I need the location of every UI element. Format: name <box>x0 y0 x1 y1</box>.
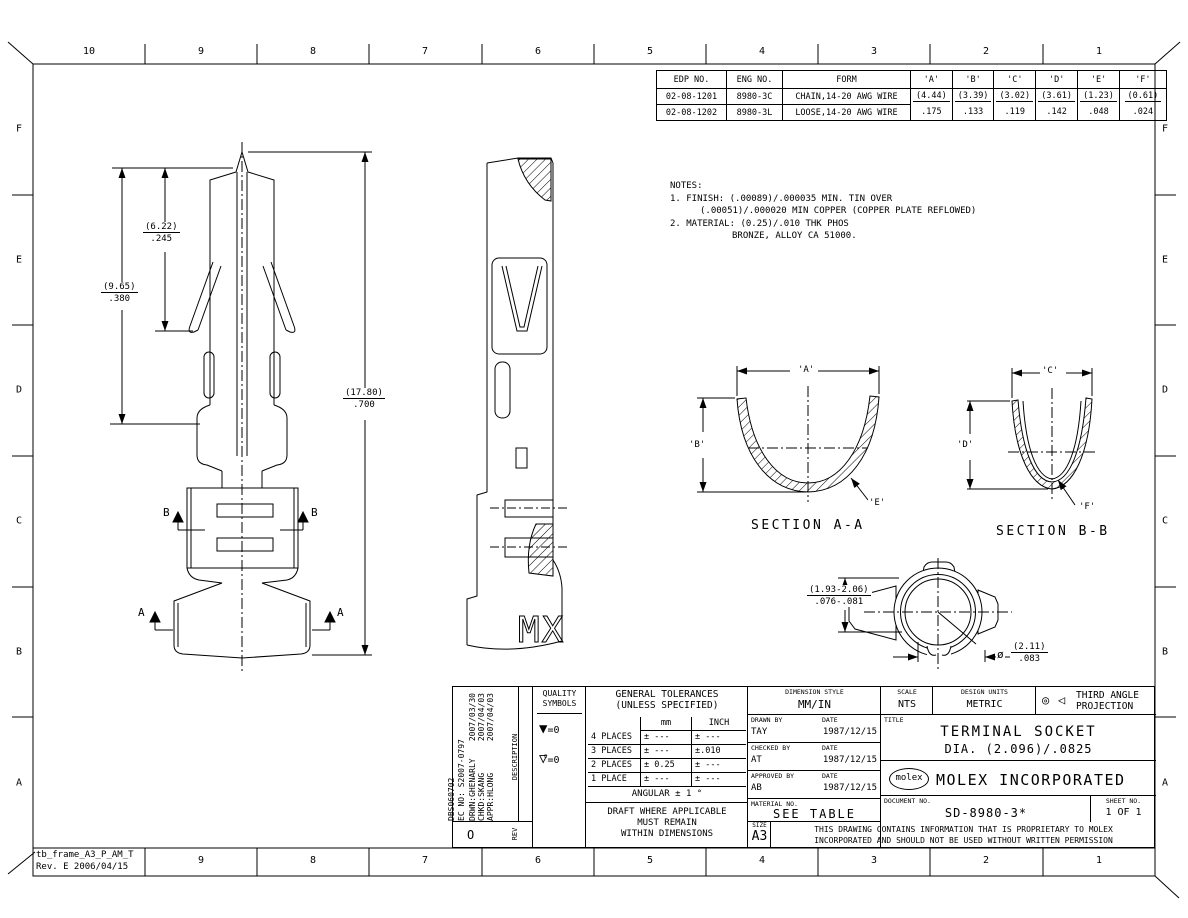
title-area: SCALE NTS DESIGN UNITS METRIC ◎ ◁ THIRD … <box>881 687 1156 822</box>
company-cell: molex MOLEX INCORPORATED <box>881 761 1156 796</box>
checked-date: 1987/12/15 <box>823 755 877 765</box>
grid-col-label: 9 <box>198 855 204 866</box>
drawn-by-value: TAY <box>751 727 767 737</box>
grid-col-label: 8 <box>310 46 316 57</box>
dim-in: .119 <box>994 105 1036 121</box>
dim-in: .142 <box>1036 105 1078 121</box>
col-header: EDP NO. <box>657 71 727 89</box>
mx-marking: MX <box>518 610 565 651</box>
quality-symbol-open: ▽C=0 <box>539 751 559 767</box>
dim-letter-e: 'E' <box>868 498 886 508</box>
frame-id-block: tb_frame_A3_P_AM_T Rev. E 2006/04/15 <box>36 849 134 873</box>
grid-col-label: 7 <box>422 855 428 866</box>
description-header: DESCRIPTION <box>510 693 520 821</box>
tol-label: 2 PLACES <box>588 759 640 773</box>
col-header: FORM <box>783 71 911 89</box>
date-label: DATE <box>822 744 838 752</box>
molex-logo: molex <box>889 768 929 790</box>
date-label: DATE <box>822 716 838 724</box>
tol-mm: ± --- <box>640 773 691 787</box>
sheet-no-label: SHEET NO. <box>1091 797 1156 805</box>
dim-in: .133 <box>952 105 994 121</box>
approved-rev: APPR:HLONG2007/04/03 <box>486 693 496 821</box>
grid-col-label: 5 <box>647 46 653 57</box>
cone-icon: ◁ <box>1058 693 1065 707</box>
approved-by-cell: APPROVED BY DATE AB 1987/12/15 <box>748 771 881 799</box>
approved-by-value: AB <box>751 783 762 793</box>
col-header: 'C' <box>994 71 1036 89</box>
proprietary-notice: THIS DRAWING CONTAINS INFORMATION THAT I… <box>771 824 1156 846</box>
edp-no: 02-08-1202 <box>657 105 727 121</box>
document-no-label: DOCUMENT NO. <box>884 797 931 805</box>
tolerance-table: mm INCH 4 PLACES ± --- ± --- 3 PLACES ± … <box>588 717 746 787</box>
drawing-title1: TERMINAL SOCKET <box>881 724 1156 740</box>
tol-inch: ±.010 <box>691 745 746 759</box>
projection-line2: PROJECTION <box>1076 701 1133 712</box>
dim-label-17-80: (17.80) .700 <box>342 388 386 410</box>
rev-mark: O <box>467 828 474 842</box>
quality-symbol-filled: ▼=0 <box>539 721 559 737</box>
dim-mm: (1.23) <box>1078 89 1120 105</box>
grid-col-label: 5 <box>647 855 653 866</box>
scale-cell: SCALE NTS <box>881 687 933 715</box>
dim-letter-a: 'A' <box>797 365 815 375</box>
table-header-row: EDP NO. ENG NO. FORM 'A' 'B' 'C' 'D' 'E'… <box>657 71 1167 89</box>
material-value: SEE TABLE <box>748 807 881 821</box>
dimension-style-label: DIMENSION STYLE <box>748 688 881 696</box>
grid-row-label: A <box>16 778 22 789</box>
note-line: (.00051)/.000020 MIN COPPER (COPPER PLAT… <box>670 205 976 218</box>
rev-header: REV <box>510 823 520 845</box>
col-header: ENG NO. <box>727 71 783 89</box>
quality-symbols-block: QUALITY SYMBOLS ▼=0 ▽C=0 <box>533 687 586 847</box>
approved-date: 1987/12/15 <box>823 783 877 793</box>
drawing-title2: DIA. (2.096)/.0825 <box>881 742 1156 756</box>
grid-row-label: E <box>1162 255 1168 266</box>
grid-col-label: 3 <box>871 46 877 57</box>
symbol-value: =0 <box>547 725 559 736</box>
dim-label-9-65: (9.65) .380 <box>100 282 139 304</box>
grid-col-label: 4 <box>759 46 765 57</box>
dim-in: .024 <box>1119 105 1166 121</box>
section-aa-view <box>697 366 879 502</box>
grid-col-label: 2 <box>983 46 989 57</box>
title-cell: TITLE TERMINAL SOCKET DIA. (2.096)/.0825 <box>881 715 1156 761</box>
tol-inch: ± --- <box>691 731 746 745</box>
bullseye-icon: ◎ <box>1042 693 1049 707</box>
sheet-no-value: 1 OF 1 <box>1091 807 1156 818</box>
grid-col-label: 10 <box>83 46 95 57</box>
grid-col-label: 9 <box>198 46 204 57</box>
dim-in: .175 <box>911 105 953 121</box>
size-label: SIZE <box>748 822 771 829</box>
part-number-table: EDP NO. ENG NO. FORM 'A' 'B' 'C' 'D' 'E'… <box>656 70 1167 121</box>
size-value: A3 <box>748 829 771 844</box>
title-block: DBS060702 EC NO: S2007-0797 DRWN:GHENARL… <box>452 686 1155 848</box>
draft-note3: WITHIN DIMENSIONS <box>586 829 748 839</box>
col-header: 'E' <box>1078 71 1120 89</box>
col-header: 'A' <box>911 71 953 89</box>
dim-in: .700 <box>343 399 385 410</box>
spacer <box>588 717 640 731</box>
col-header: 'B' <box>952 71 994 89</box>
dim-mm: (0.61) <box>1119 89 1166 105</box>
section-bb-view <box>967 368 1098 505</box>
tolerance-title1: GENERAL TOLERANCES <box>586 689 748 700</box>
dim-label-tab: (1.93-2.06) .076-.081 <box>806 585 872 607</box>
grid-row-label: E <box>16 255 22 266</box>
section-cut-label-a: A <box>337 606 344 619</box>
eng-no: 8980-3C <box>727 89 783 105</box>
company-name: MOLEX INCORPORATED <box>936 771 1126 789</box>
grid-row-label: B <box>16 647 22 658</box>
tol-mm: ± 0.25 <box>640 759 691 773</box>
material-cell: MATERIAL NO. SEE TABLE <box>748 799 881 822</box>
grid-col-label: 4 <box>759 855 765 866</box>
dim-mm: (3.39) <box>952 89 994 105</box>
grid-row-label: C <box>16 516 22 527</box>
projection-line1: THIRD ANGLE <box>1076 690 1139 701</box>
section-cut-label-b: B <box>311 506 318 519</box>
approved-by-label: APPROVED BY <box>751 772 794 780</box>
tol-label: 3 PLACES <box>588 745 640 759</box>
dim-letter-b: 'B' <box>688 440 706 450</box>
dim-mm: (9.65) <box>101 282 138 293</box>
dim-label-dia: (2.11) .083 <box>1010 642 1049 664</box>
dim-letter-c: 'C' <box>1041 366 1059 376</box>
divider <box>453 821 533 822</box>
mm-header: mm <box>640 717 691 731</box>
symbol-value: =0 <box>547 755 559 766</box>
grid-col-label: 7 <box>422 46 428 57</box>
design-units-value: METRIC <box>933 699 1036 710</box>
inch-header: INCH <box>691 717 746 731</box>
diameter-symbol: ø <box>996 648 1005 661</box>
grid-col-label: 6 <box>535 46 541 57</box>
tol-label: 4 PLACES <box>588 731 640 745</box>
dim-letter-f: 'F' <box>1078 502 1096 512</box>
edp-no: 02-08-1201 <box>657 89 727 105</box>
drawing-sheet: MX <box>0 0 1188 918</box>
dim-label-6-22: (6.22) .245 <box>142 222 181 244</box>
dim-mm: (3.61) <box>1036 89 1078 105</box>
eng-no: 8980-3L <box>727 105 783 121</box>
note-line: BRONZE, ALLOY CA 51000. <box>670 230 976 243</box>
grid-col-label: 6 <box>535 855 541 866</box>
ec-ref: DBS060702 <box>447 693 457 821</box>
checked-by-cell: CHECKED BY DATE AT 1987/12/15 <box>748 743 881 771</box>
size-cell: SIZE A3 <box>748 822 771 847</box>
form: CHAIN,14-20 AWG WIRE <box>783 89 911 105</box>
grid-col-label: 1 <box>1096 855 1102 866</box>
frame-template-rev: Rev. E 2006/04/15 <box>36 861 134 873</box>
dim-mm: (1.93-2.06) <box>807 585 871 596</box>
grid-row-label: F <box>1162 124 1168 135</box>
dim-in: .048 <box>1078 105 1120 121</box>
grid-row-label: A <box>1162 778 1168 789</box>
note-line: 1. FINISH: (.00089)/.000035 MIN. TIN OVE… <box>670 193 976 206</box>
section-bb-title: SECTION B-B <box>996 524 1110 539</box>
dim-in: .076-.081 <box>807 596 871 607</box>
dimension-style-cell: DIMENSION STYLE MM/IN <box>748 687 881 715</box>
grid-row-label: B <box>1162 647 1168 658</box>
document-no-cell: DOCUMENT NO. SD-8980-3* <box>881 796 1091 822</box>
grid-col-label: 3 <box>871 855 877 866</box>
notes-block: NOTES: 1. FINISH: (.00089)/.000035 MIN. … <box>670 180 976 243</box>
revision-block: DBS060702 EC NO: S2007-0797 DRWN:GHENARL… <box>453 687 533 847</box>
design-units-cell: DESIGN UNITS METRIC <box>933 687 1036 715</box>
tolerances-block: GENERAL TOLERANCES (UNLESS SPECIFIED) mm… <box>586 687 748 847</box>
checked-by-value: AT <box>751 755 762 765</box>
col-header: 'D' <box>1036 71 1078 89</box>
legal-line1: THIS DRAWING CONTAINS INFORMATION THAT I… <box>771 824 1156 835</box>
dim-mm: (2.11) <box>1011 642 1048 653</box>
tol-inch: ± --- <box>691 773 746 787</box>
projection-cell: ◎ ◁ THIRD ANGLE PROJECTION <box>1036 687 1156 715</box>
quality-title: QUALITY <box>533 689 586 698</box>
sheet-no-cell: SHEET NO. 1 OF 1 <box>1091 796 1156 822</box>
scale-value: NTS <box>881 699 933 710</box>
grid-row-label: D <box>1162 385 1168 396</box>
dimension-style-value: MM/IN <box>748 698 881 711</box>
document-no-value: SD-8980-3* <box>881 806 1091 820</box>
grid-row-label: C <box>1162 516 1168 527</box>
dim-mm: (17.80) <box>343 388 385 399</box>
section-cut-label-b: B <box>163 506 170 519</box>
draft-note2: MUST REMAIN <box>586 818 748 828</box>
grid-row-label: F <box>16 124 22 135</box>
checked-by-label: CHECKED BY <box>751 744 790 752</box>
dim-mm: (4.44) <box>911 89 953 105</box>
dim-in: .380 <box>101 293 138 304</box>
col-header: 'F' <box>1119 71 1166 89</box>
open-triangle-icon: ▽C <box>539 751 547 767</box>
drawn-by-label: DRAWN BY <box>751 716 782 724</box>
drawn-by-cell: DRAWN BY DATE TAY 1987/12/15 <box>748 715 881 743</box>
tol-mm: ± --- <box>640 745 691 759</box>
dim-in: .245 <box>143 233 180 244</box>
grid-col-label: 2 <box>983 855 989 866</box>
notes-title: NOTES: <box>670 180 976 193</box>
ec-number: EC NO: S2007-0797 <box>457 693 467 821</box>
drawn-date: 1987/12/15 <box>823 727 877 737</box>
dim-mm: (3.02) <box>994 89 1036 105</box>
form: LOOSE,14-20 AWG WIRE <box>783 105 911 121</box>
design-units-label: DESIGN UNITS <box>933 688 1036 696</box>
dim-mm: (6.22) <box>143 222 180 233</box>
grid-col-label: 8 <box>310 855 316 866</box>
tol-inch: ± --- <box>691 759 746 773</box>
terminal-end-view <box>838 558 1012 672</box>
angular-tolerance: ANGULAR ± 1 ° <box>586 789 748 799</box>
terminal-side-view: MX <box>467 158 568 651</box>
table-row: 02-08-1201 8980-3C CHAIN,14-20 AWG WIRE … <box>657 89 1167 105</box>
frame-template-name: tb_frame_A3_P_AM_T <box>36 849 134 861</box>
tol-mm: ± --- <box>640 731 691 745</box>
grid-row-label: D <box>16 385 22 396</box>
draft-note1: DRAFT WHERE APPLICABLE <box>586 807 748 817</box>
title-label: TITLE <box>884 716 904 724</box>
date-label: DATE <box>822 772 838 780</box>
dim-in: .083 <box>1011 653 1048 664</box>
tol-label: 1 PLACE <box>588 773 640 787</box>
dim-letter-d: 'D' <box>956 440 974 450</box>
note-line: 2. MATERIAL: (0.25)/.010 THK PHOS <box>670 218 976 231</box>
section-cut-label-a: A <box>138 606 145 619</box>
divider <box>537 713 582 714</box>
table-row: 02-08-1202 8980-3L LOOSE,14-20 AWG WIRE … <box>657 105 1167 121</box>
grid-col-label: 1 <box>1096 46 1102 57</box>
scale-label: SCALE <box>881 688 933 696</box>
tolerance-title2: (UNLESS SPECIFIED) <box>586 700 748 711</box>
symbols-title: SYMBOLS <box>533 699 586 708</box>
legal-line2: INCORPORATED AND SHOULD NOT BE USED WITH… <box>771 835 1156 846</box>
divider <box>586 802 748 803</box>
section-aa-title: SECTION A-A <box>751 518 865 533</box>
